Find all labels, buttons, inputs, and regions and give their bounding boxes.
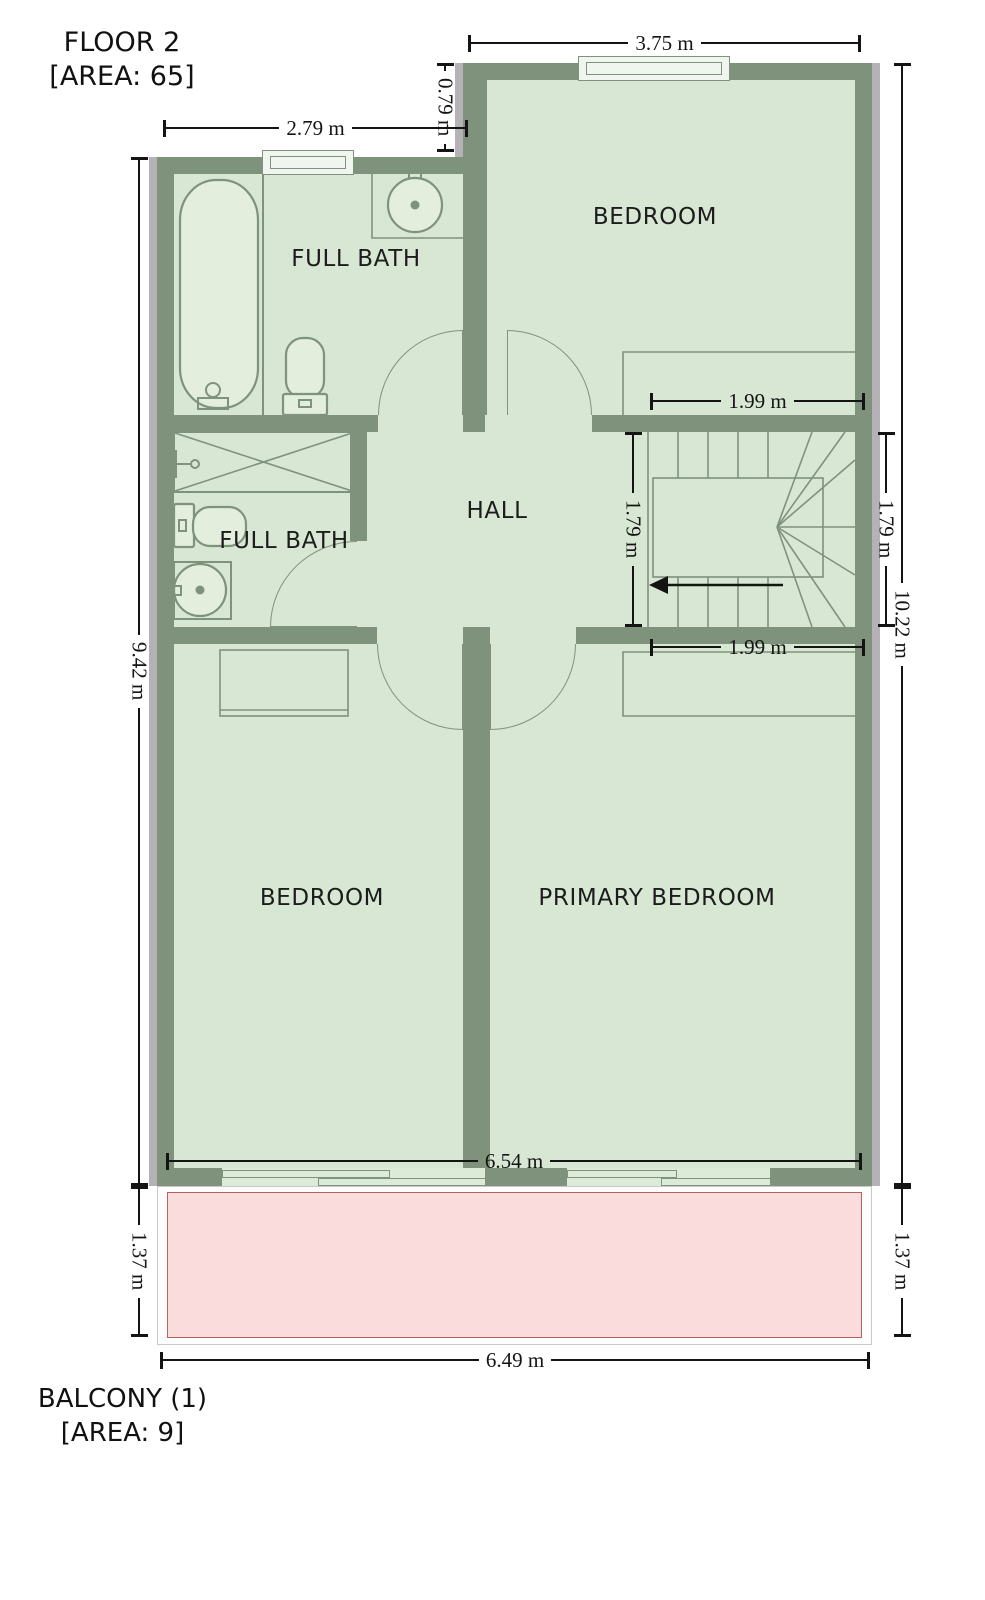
floor-plan: FLOOR 2 [AREA: 65] BALCONY (1) [AREA: 9] — [0, 0, 985, 1600]
closet-primary-bedroom — [623, 652, 855, 716]
dim-stair-width-bottom: 1.99 m — [650, 638, 865, 656]
closet-bedroom-lower — [220, 650, 348, 716]
dim-bedroom-top-width: 3.75 m — [468, 34, 861, 52]
dim-right-height: 10.22 m — [893, 63, 911, 1186]
label-full-bath-top: FULL BATH — [291, 246, 420, 272]
dim-bath-top-width: 2.79 m — [163, 119, 468, 137]
label-bedroom-top: BEDROOM — [593, 204, 717, 230]
dim-balcony-width: 6.49 m — [160, 1351, 870, 1369]
sink-top-bath — [372, 168, 463, 238]
label-full-bath-lower: FULL BATH — [219, 528, 348, 554]
staircase — [648, 432, 855, 627]
dim-wall-offset: 0.79 m — [436, 63, 454, 152]
dim-left-height: 9.42 m — [130, 157, 148, 1186]
label-hall: HALL — [466, 498, 527, 524]
label-primary-bedroom: PRIMARY BEDROOM — [538, 885, 775, 911]
dim-interior-width: 6.54 m — [166, 1152, 862, 1170]
label-bedroom-lower: BEDROOM — [260, 885, 384, 911]
dim-stair-width-top: 1.99 m — [650, 392, 865, 410]
dim-balcony-height-left: 1.37 m — [130, 1186, 148, 1337]
shower — [174, 432, 353, 492]
dim-balcony-height-right: 1.37 m — [893, 1186, 911, 1337]
bathtub — [180, 180, 258, 409]
sink-lower-bath — [167, 562, 231, 619]
dim-stair-depth-inner: 1.79 m — [624, 432, 642, 627]
toilet-top-bath — [283, 338, 327, 415]
stair-direction-arrow — [649, 576, 783, 594]
